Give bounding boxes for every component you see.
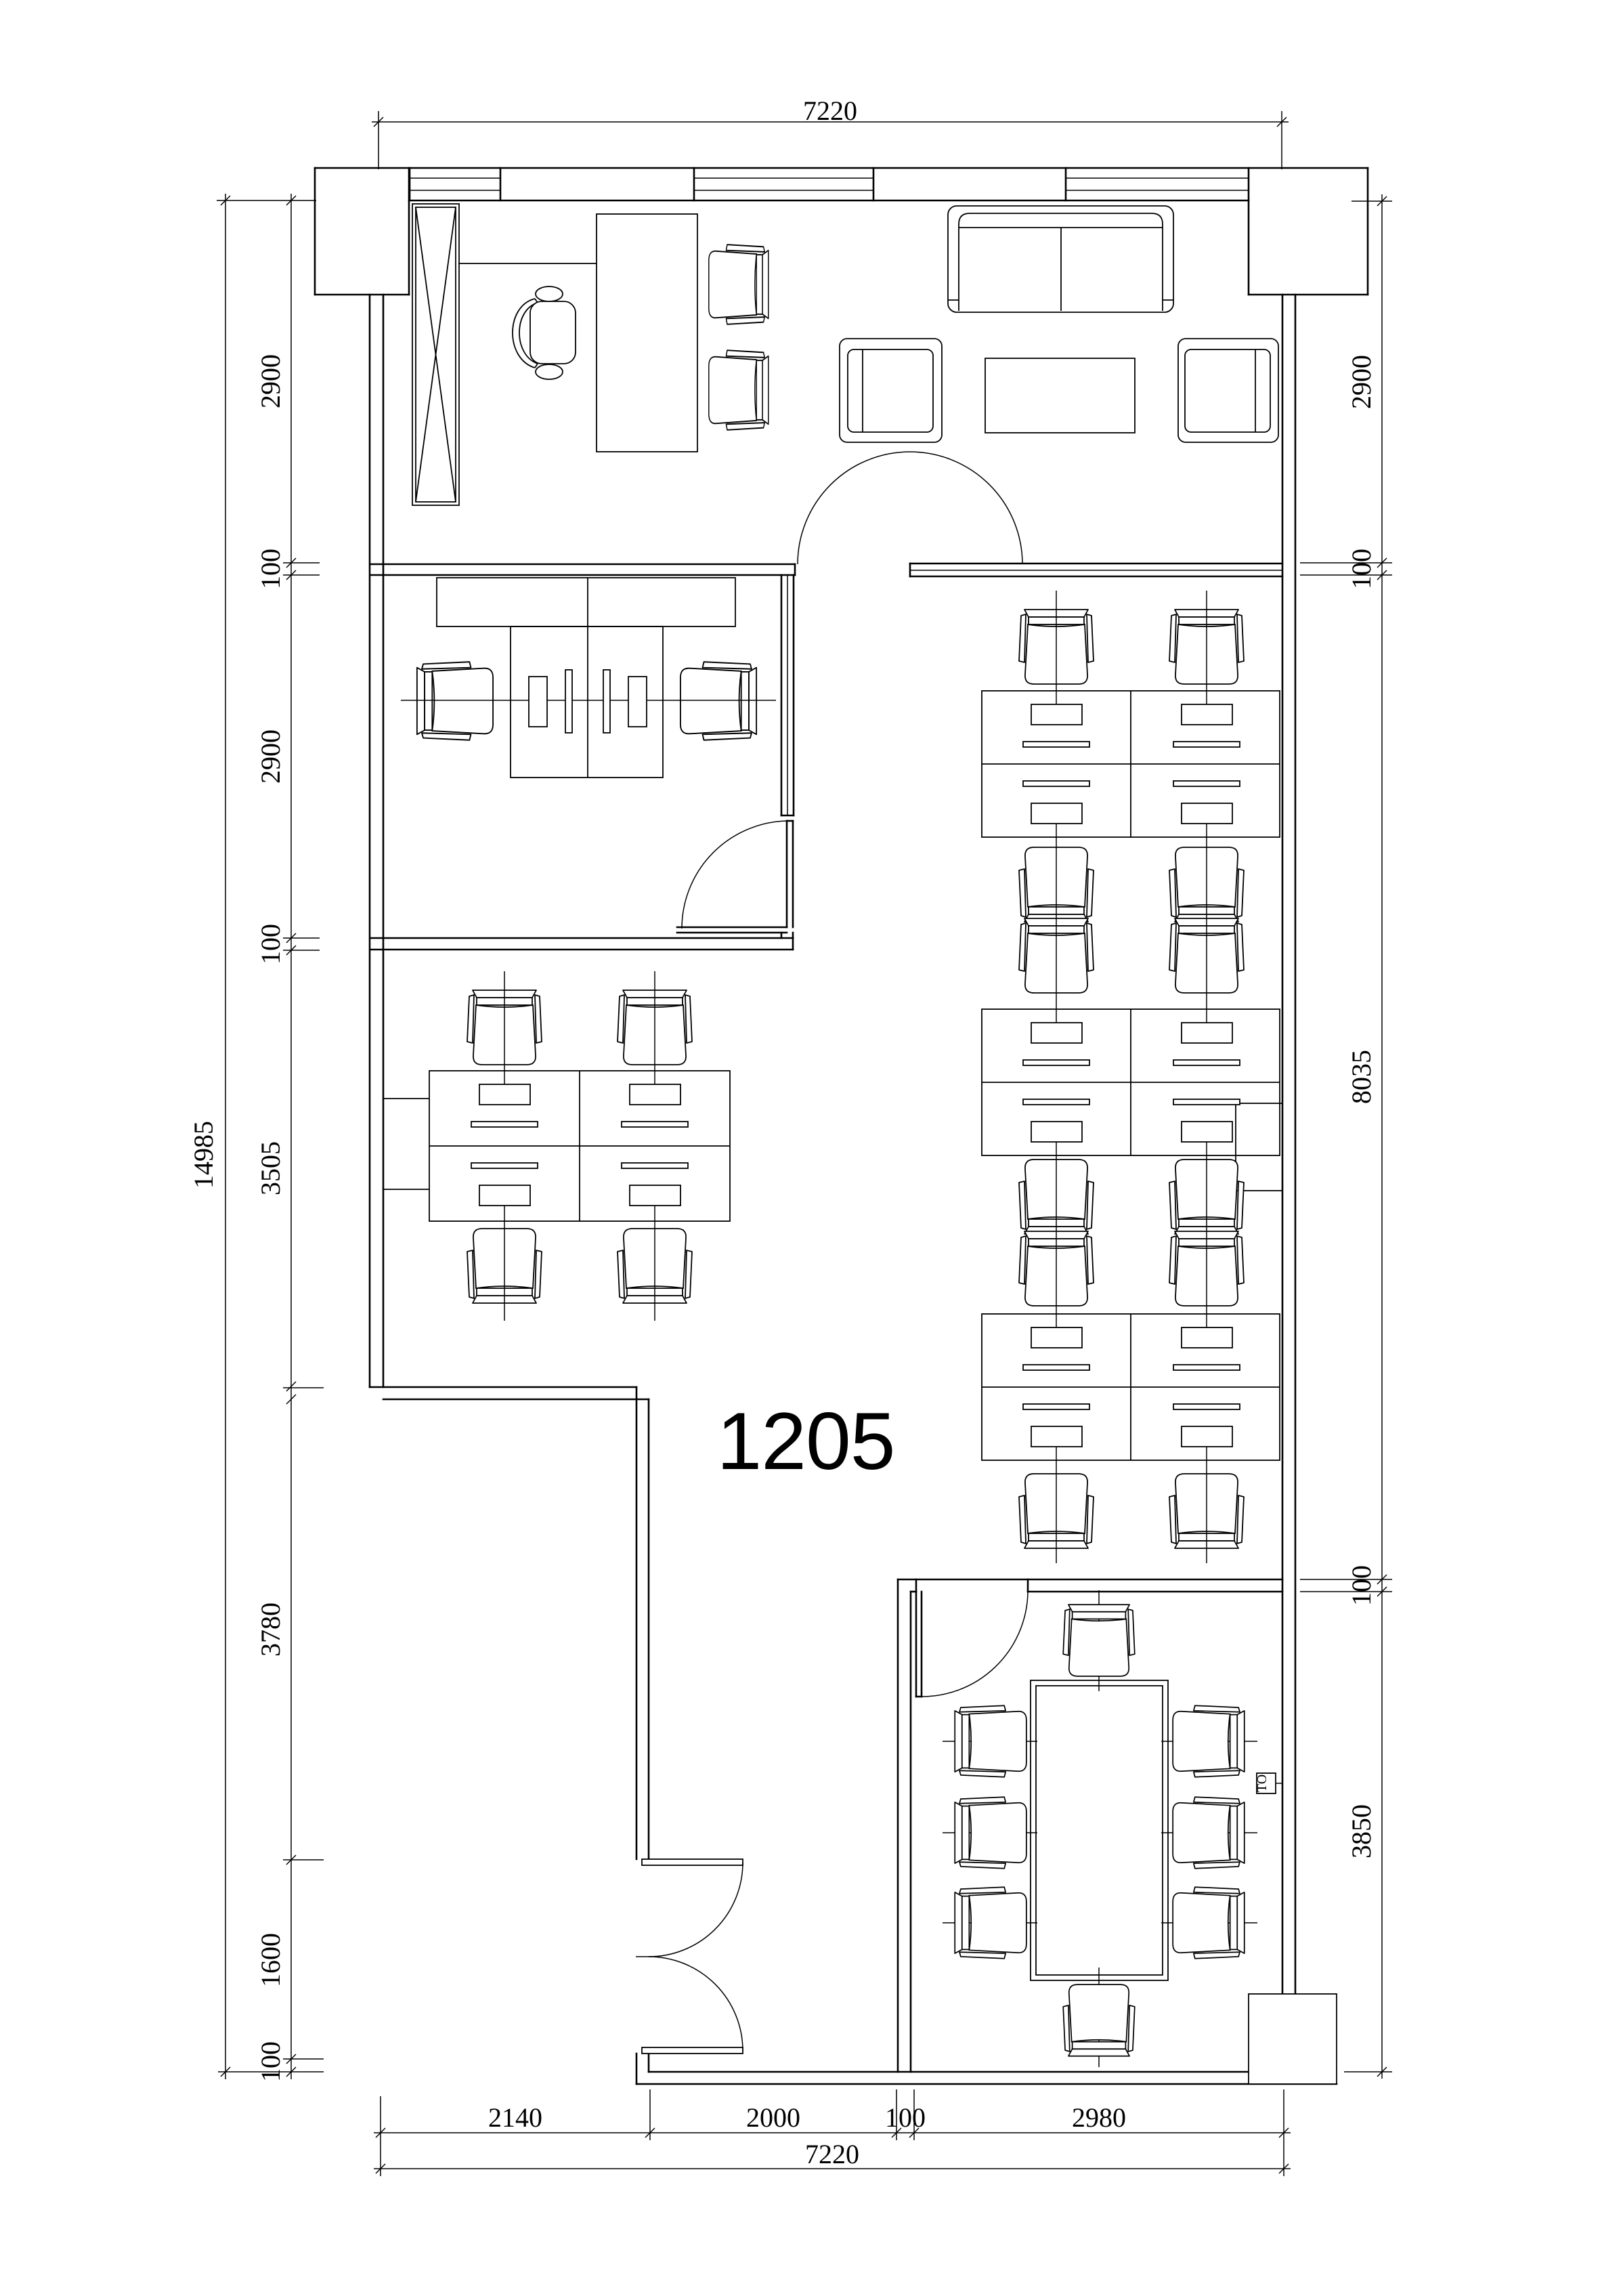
svg-text:14985: 14985 [188,1121,219,1189]
svg-text:100: 100 [885,2102,926,2133]
svg-text:3780: 3780 [255,1602,286,1657]
svg-text:100: 100 [1346,1565,1377,1606]
svg-text:2140: 2140 [488,2102,542,2133]
svg-text:1205: 1205 [717,1396,895,1487]
svg-text:7220: 7220 [803,95,857,126]
svg-text:1600: 1600 [255,1933,286,1987]
svg-text:100: 100 [255,2041,286,2082]
svg-text:2900: 2900 [255,354,286,408]
svg-text:100: 100 [1346,549,1377,589]
svg-text:2900: 2900 [1346,355,1377,409]
svg-text:8035: 8035 [1346,1050,1377,1104]
svg-text:2980: 2980 [1072,2102,1126,2133]
svg-text:7220: 7220 [805,2139,859,2169]
svg-text:100: 100 [255,549,286,589]
svg-text:100: 100 [255,924,286,964]
svg-text:2900: 2900 [255,729,286,784]
svg-text:3505: 3505 [255,1141,286,1195]
svg-text:TO: TO [1255,1774,1270,1792]
svg-text:2000: 2000 [746,2102,800,2133]
svg-text:3850: 3850 [1346,1804,1377,1858]
